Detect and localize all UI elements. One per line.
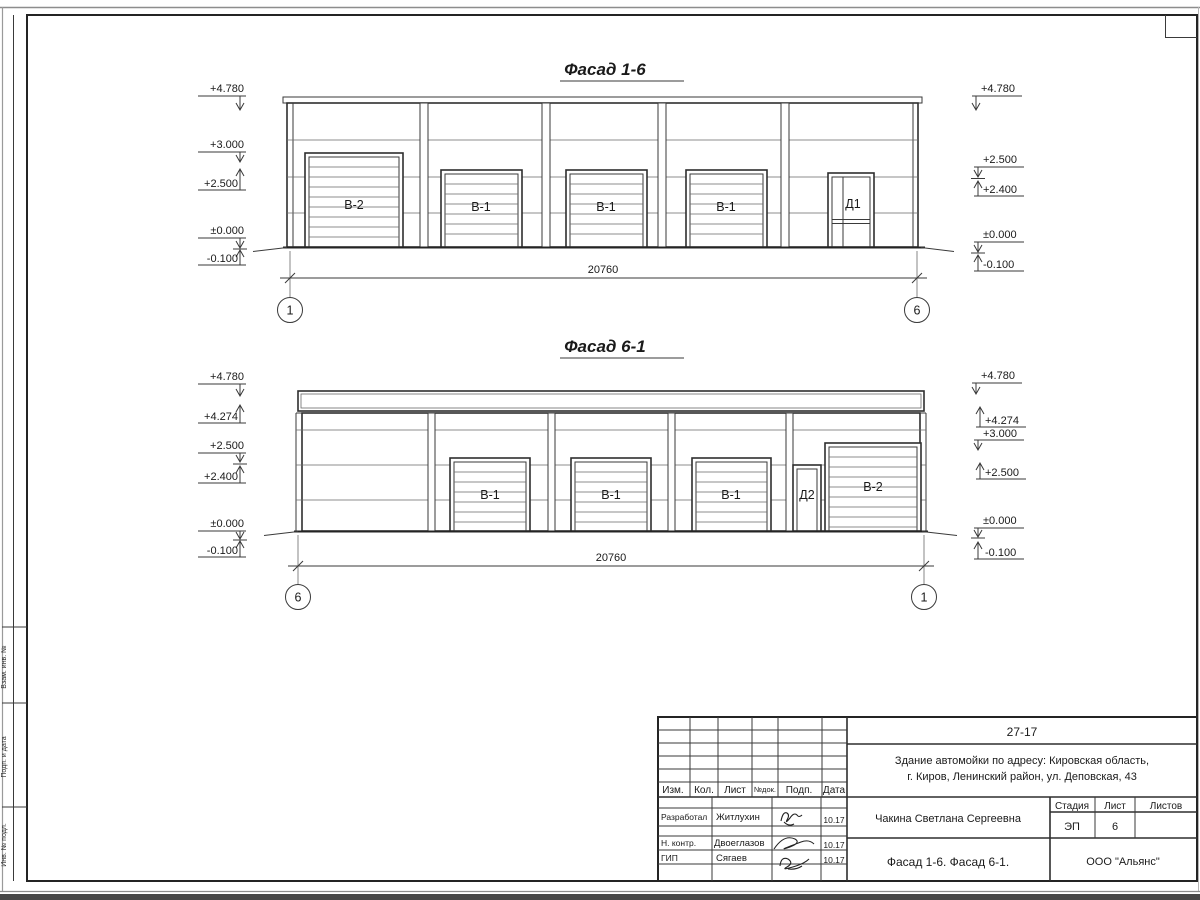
- axis-label: 6: [295, 591, 302, 605]
- elevation-value: ±0.000: [210, 225, 244, 237]
- elevation-value: +2.500: [204, 178, 238, 190]
- facade-1-6-building: В-2 В-1 В-1 В-1: [253, 97, 954, 252]
- project-address-line1: Здание автомойки по адресу: Кировская об…: [895, 755, 1149, 767]
- axis-label: 1: [921, 591, 928, 605]
- header-kol: Кол.: [694, 785, 714, 796]
- gate-v1: В-1: [686, 170, 767, 247]
- pilaster: [548, 413, 555, 531]
- facade-6-1-building: В-1 В-1 В-1 Д2: [264, 391, 957, 536]
- role: Н. контр.: [661, 838, 696, 848]
- gate-label: В-1: [480, 488, 500, 502]
- elevation-value: -0.100: [207, 253, 238, 265]
- project-address-line2: г. Киров, Ленинский район, ул. Деповская…: [907, 771, 1137, 783]
- client-name: Чакина Светлана Сергеевна: [875, 813, 1022, 825]
- person-name: Житлухин: [716, 812, 760, 823]
- role: Разработал: [661, 812, 707, 822]
- gate-label: В-2: [344, 198, 364, 212]
- pilaster: [786, 413, 793, 531]
- elevation-value: ±0.000: [983, 515, 1017, 527]
- axis-label: 6: [914, 304, 921, 318]
- elevation-value: +4.780: [981, 370, 1015, 382]
- elevation-value: -0.100: [983, 259, 1014, 271]
- door-d2: Д2: [793, 465, 821, 531]
- parapet-cap: [283, 97, 922, 103]
- header-izm: Изм.: [662, 785, 683, 796]
- elevation-value: +3.000: [983, 428, 1017, 440]
- elevation-value: +2.500: [210, 440, 244, 452]
- person-name: Двоеглазов: [714, 838, 765, 849]
- title-block: Изм. Кол. Лист №док. Подп. Дата Разработ…: [658, 717, 1197, 881]
- elevation-value: -0.100: [985, 547, 1016, 559]
- list-label: Лист: [1104, 801, 1126, 812]
- pilaster: [668, 413, 675, 531]
- role: ГИП: [661, 853, 678, 863]
- organization: ООО "Альянс": [1086, 856, 1160, 868]
- header-ndok: №док.: [754, 785, 776, 794]
- pilaster: [428, 413, 435, 531]
- elevation-value: -0.100: [207, 545, 238, 557]
- date: 10.17: [823, 815, 845, 825]
- elevation-value: +3.000: [210, 139, 244, 151]
- margin-label: Инв. № подл.: [1, 823, 8, 867]
- date: 10.17: [823, 855, 845, 865]
- drawing-sheet: Взам. инв. № Подп. и дата Инв. № подл. Ф…: [0, 0, 1200, 900]
- margin-label: Взам. инв. №: [1, 645, 8, 688]
- elevation-value: ±0.000: [210, 518, 244, 530]
- stage-label: Стадия: [1055, 801, 1089, 812]
- gate-v2: В-2: [825, 443, 921, 531]
- gate-label: В-1: [471, 200, 491, 214]
- dimension-value: 20760: [588, 264, 619, 276]
- elevation-value: +2.500: [983, 154, 1017, 166]
- elevation-value: +4.780: [210, 371, 244, 383]
- elevation-value: +4.780: [981, 83, 1015, 95]
- pilaster: [420, 103, 428, 247]
- margin-labels: Взам. инв. № Подп. и дата Инв. № подл.: [1, 645, 8, 866]
- pilaster: [542, 103, 550, 247]
- elevation-value: +2.500: [985, 467, 1019, 479]
- date: 10.17: [823, 840, 845, 850]
- list-value: 6: [1112, 821, 1118, 833]
- gate-label: В-2: [863, 480, 883, 494]
- gate-v1: В-1: [441, 170, 522, 247]
- gate-v1: В-1: [450, 458, 530, 531]
- facade-1-6-title: Фасад 1-6: [564, 60, 646, 79]
- listov-label: Листов: [1150, 801, 1183, 812]
- facade-6-1-title: Фасад 6-1: [564, 337, 645, 356]
- elevation-value: +4.274: [204, 411, 238, 423]
- project-code: 27-17: [1007, 725, 1038, 739]
- header-data: Дата: [823, 785, 846, 796]
- gate-v1: В-1: [571, 458, 651, 531]
- door-label: Д2: [799, 488, 814, 502]
- gate-v1: В-1: [692, 458, 771, 531]
- gate-label: В-1: [716, 200, 736, 214]
- drawing-canvas: Взам. инв. № Подп. и дата Инв. № подл. Ф…: [0, 0, 1200, 900]
- elevation-value: +2.400: [983, 184, 1017, 196]
- person-name: Сягаев: [716, 853, 747, 864]
- stage-value: ЭП: [1064, 821, 1080, 833]
- elevation-value: +4.274: [985, 415, 1019, 427]
- margin-label: Подп. и дата: [1, 736, 8, 777]
- gate-v1: В-1: [566, 170, 647, 247]
- scan-edge-strip: [0, 894, 1200, 900]
- pilaster: [781, 103, 789, 247]
- gate-label: В-1: [721, 488, 741, 502]
- door-d1: Д1: [828, 173, 874, 247]
- gate-label: В-1: [601, 488, 621, 502]
- door-label: Д1: [845, 197, 860, 211]
- elevation-value: +4.780: [210, 83, 244, 95]
- pilaster: [658, 103, 666, 247]
- gate-label: В-1: [596, 200, 616, 214]
- sheet-title: Фасад 1-6. Фасад 6-1.: [887, 855, 1009, 869]
- dimension-value: 20760: [596, 552, 627, 564]
- axis-label: 1: [287, 304, 294, 318]
- elevation-value: +2.400: [204, 471, 238, 483]
- elevation-value: ±0.000: [983, 229, 1017, 241]
- gate-v2: В-2: [305, 153, 403, 247]
- header-podp: Подп.: [786, 785, 813, 796]
- header-list: Лист: [724, 785, 746, 796]
